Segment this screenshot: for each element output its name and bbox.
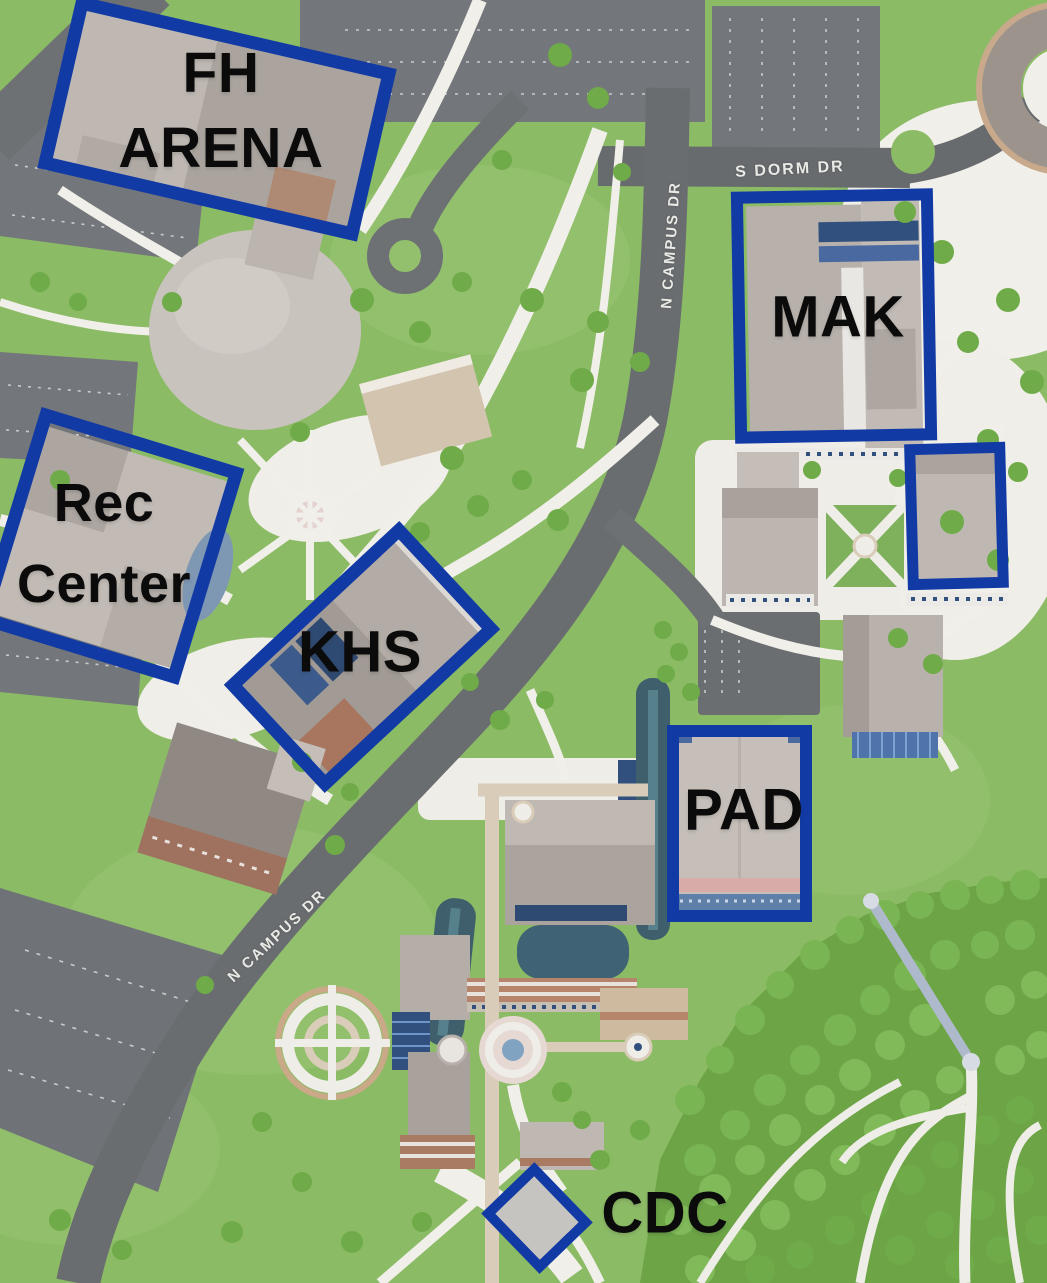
label-rec-center: Rec Center [17, 463, 191, 625]
label-fh-arena-line2: ARENA [118, 111, 323, 186]
label-rec-center-line2: Center [17, 544, 191, 625]
label-fh-arena-line1: FH [118, 36, 323, 111]
label-fh-arena: FH ARENA [118, 36, 323, 186]
label-cdc: CDC [601, 1180, 728, 1247]
label-khs: KHS [298, 619, 422, 686]
label-pad: PAD [684, 777, 804, 844]
label-rec-center-line1: Rec [17, 463, 191, 544]
highlight-box-mak-annex[interactable] [904, 442, 1009, 591]
campus-map[interactable]: FH ARENA Rec Center MAK KHS PAD CDC S DO… [0, 0, 1047, 1283]
label-mak: MAK [771, 284, 905, 351]
